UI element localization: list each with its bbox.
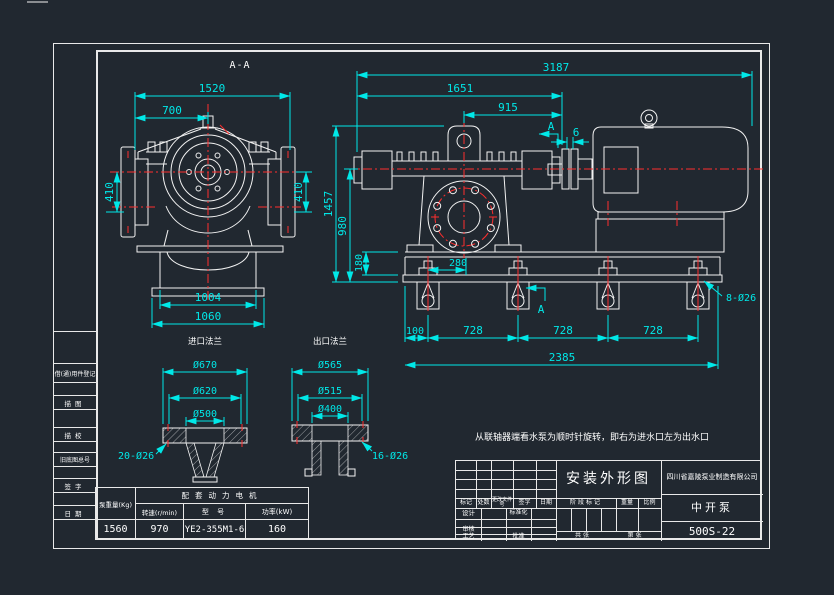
dim-980: 980 — [336, 216, 349, 236]
dim-100: 100 — [406, 326, 424, 337]
section-arrow-bottom: A — [538, 303, 545, 316]
inlet-holes-label: 20-Ø26 — [118, 450, 154, 462]
dim-inlet-bolt-circle: Ø620 — [193, 385, 217, 397]
dim-3187: 3187 — [543, 61, 570, 74]
dim-728-2: 728 — [553, 324, 573, 337]
dim-outlet-bore: Ø400 — [318, 403, 342, 415]
dim-728-3: 728 — [643, 324, 663, 337]
cad-drawing: A-A 15 — [0, 0, 834, 595]
rotation-note: 从联轴器端看水泵为顺时针旋转，即右为进水口左为出水口 — [475, 431, 709, 443]
outlet-flange-detail: 出口法兰 Ø565 Ø515 Ø400 16-Ø26 — [292, 336, 408, 476]
dim-1004: 1004 — [195, 291, 222, 304]
dim-700: 700 — [162, 104, 182, 117]
section-view-title: A-A — [229, 60, 250, 71]
dim-915: 915 — [498, 101, 518, 114]
dim-280: 280 — [449, 258, 467, 269]
dim-180: 180 — [354, 254, 365, 272]
anchor-holes-label: 8-Ø26 — [726, 292, 756, 304]
dim-1651: 1651 — [447, 82, 474, 95]
outlet-flange-title: 出口法兰 — [313, 336, 347, 347]
dim-1060: 1060 — [195, 310, 222, 323]
outlet-holes-label: 16-Ø26 — [372, 450, 408, 462]
dim-1520: 1520 — [199, 82, 226, 95]
dim-2385: 2385 — [549, 351, 576, 364]
dim-410-right: 410 — [292, 182, 305, 202]
section-view: A-A 15 — [103, 60, 312, 328]
inlet-flange-title: 进口法兰 — [188, 336, 222, 347]
dim-outlet-bolt-circle: Ø515 — [318, 385, 342, 397]
inlet-flange-detail: 进口法兰 Ø670 Ø620 Ø500 20-Ø26 — [118, 336, 247, 482]
dim-728-1: 728 — [463, 324, 483, 337]
dim-1457: 1457 — [322, 191, 335, 218]
dim-6: 6 — [573, 126, 580, 139]
front-view: 3187 1651 915 6 1457 980 180 280 100 728… — [322, 61, 766, 369]
dim-inlet-outer: Ø670 — [193, 359, 217, 371]
section-arrow-top: A — [548, 120, 555, 133]
dim-outlet-outer: Ø565 — [318, 359, 342, 371]
dim-inlet-bore: Ø500 — [193, 408, 217, 420]
dim-410-left: 410 — [103, 182, 116, 202]
